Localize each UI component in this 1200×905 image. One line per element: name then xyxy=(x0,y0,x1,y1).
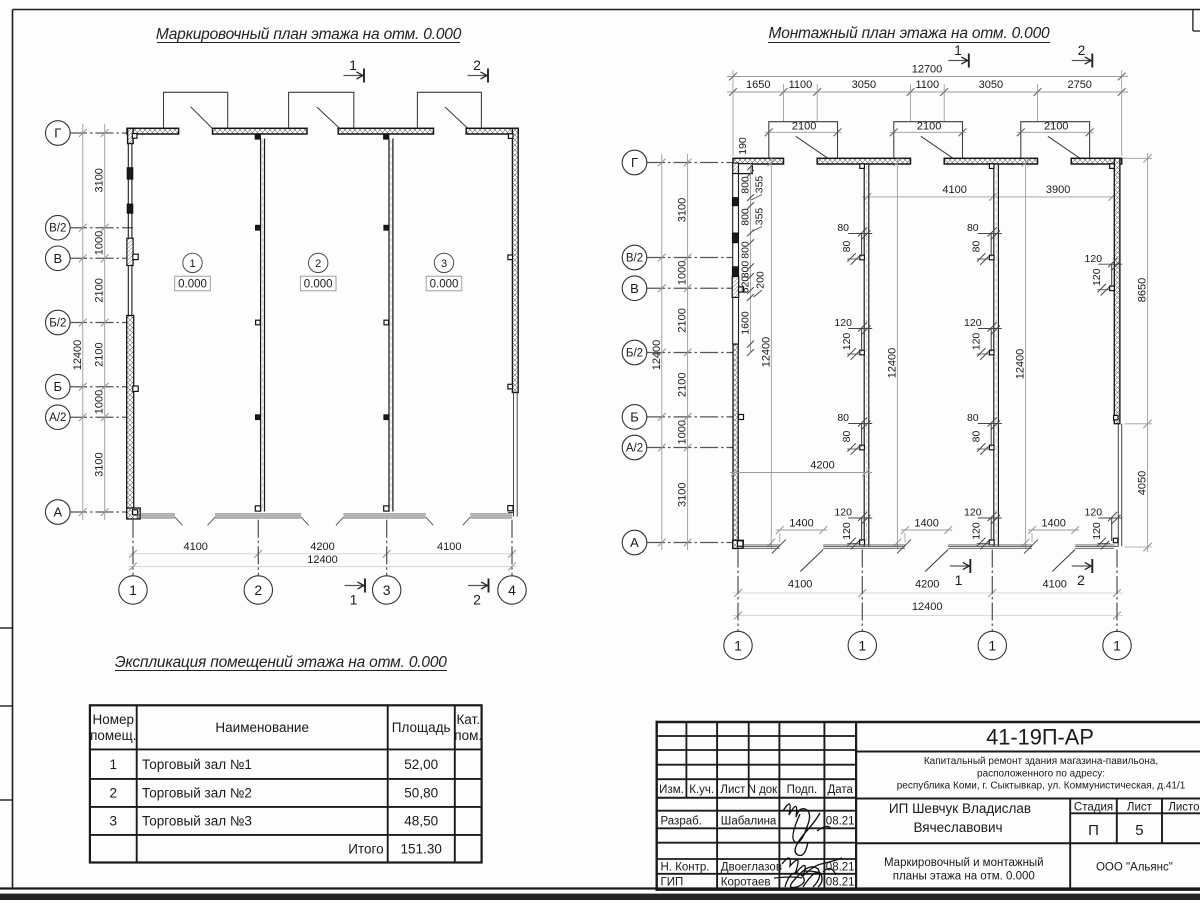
svg-text:800: 800 xyxy=(740,261,752,279)
svg-text:0.000: 0.000 xyxy=(178,279,207,291)
svg-text:3900: 3900 xyxy=(1046,184,1070,196)
svg-text:2: 2 xyxy=(473,57,481,73)
svg-text:Торговый зал №1: Торговый зал №1 xyxy=(142,757,252,772)
svg-text:Б: Б xyxy=(54,379,63,394)
svg-text:1400: 1400 xyxy=(914,517,938,529)
svg-text:1400: 1400 xyxy=(789,517,813,529)
svg-text:3100: 3100 xyxy=(94,452,106,476)
svg-text:В: В xyxy=(630,281,639,296)
svg-text:1: 1 xyxy=(1113,637,1121,653)
svg-text:120: 120 xyxy=(834,317,852,329)
svg-text:12400: 12400 xyxy=(307,554,338,566)
svg-text:12400: 12400 xyxy=(760,337,772,368)
svg-text:2100: 2100 xyxy=(792,120,816,132)
svg-text:пом.: пом. xyxy=(454,728,482,743)
svg-text:Н. Контр.: Н. Контр. xyxy=(661,861,710,873)
svg-text:Б: Б xyxy=(630,409,639,424)
svg-text:2: 2 xyxy=(1078,43,1086,58)
svg-text:80: 80 xyxy=(837,222,849,234)
svg-text:5: 5 xyxy=(1135,822,1143,839)
svg-text:1000: 1000 xyxy=(94,390,106,414)
svg-text:2100: 2100 xyxy=(677,372,689,396)
svg-text:48,50: 48,50 xyxy=(404,814,438,829)
svg-text:ГИП: ГИП xyxy=(661,877,684,889)
svg-text:4: 4 xyxy=(508,582,516,598)
svg-text:А: А xyxy=(630,535,639,550)
svg-text:3: 3 xyxy=(441,258,447,270)
svg-text:120: 120 xyxy=(971,333,983,351)
svg-text:1400: 1400 xyxy=(1041,517,1065,529)
svg-text:Дата: Дата xyxy=(827,784,853,796)
svg-text:расположенного по адресу:: расположенного по адресу: xyxy=(977,768,1105,779)
svg-text:1600: 1600 xyxy=(740,311,752,335)
svg-text:2: 2 xyxy=(473,591,481,607)
svg-text:Лист: Лист xyxy=(1127,802,1153,814)
svg-text:Разраб.: Разраб. xyxy=(661,815,702,827)
svg-text:1: 1 xyxy=(955,572,963,588)
svg-text:Наименование: Наименование xyxy=(215,720,309,735)
svg-text:1: 1 xyxy=(189,258,195,270)
svg-text:41-19П-АР: 41-19П-АР xyxy=(986,725,1094,750)
svg-text:0.000: 0.000 xyxy=(430,279,459,291)
svg-text:151.30: 151.30 xyxy=(401,841,442,856)
svg-text:К.уч.: К.уч. xyxy=(689,784,714,796)
svg-text:80: 80 xyxy=(967,222,979,234)
svg-text:3100: 3100 xyxy=(677,198,689,222)
svg-text:Двоеглазов: Двоеглазов xyxy=(721,861,782,873)
svg-text:12400: 12400 xyxy=(651,340,663,371)
svg-text:120: 120 xyxy=(841,333,853,351)
svg-text:Б/2: Б/2 xyxy=(49,318,66,330)
svg-text:2100: 2100 xyxy=(677,308,689,332)
svg-text:1000: 1000 xyxy=(677,420,689,444)
svg-text:4100: 4100 xyxy=(942,184,966,196)
svg-text:4100: 4100 xyxy=(183,541,207,553)
svg-text:80: 80 xyxy=(837,412,849,424)
svg-text:2: 2 xyxy=(110,786,118,801)
svg-text:12700: 12700 xyxy=(912,64,943,76)
svg-text:1000: 1000 xyxy=(94,231,106,255)
svg-text:4200: 4200 xyxy=(915,579,939,591)
svg-text:1: 1 xyxy=(988,637,996,653)
svg-text:3: 3 xyxy=(383,582,391,598)
svg-text:Кат.: Кат. xyxy=(456,712,480,727)
svg-text:В/2: В/2 xyxy=(626,253,643,265)
svg-text:В: В xyxy=(53,251,62,266)
svg-text:08.21: 08.21 xyxy=(826,861,855,873)
svg-text:1: 1 xyxy=(734,637,742,653)
svg-text:Капитальный ремонт здания мага: Капитальный ремонт здания магазина-павил… xyxy=(924,756,1158,767)
svg-text:Маркировочный план этажа на от: Маркировочный план этажа на отм. 0.000 xyxy=(156,26,462,43)
svg-text:120: 120 xyxy=(971,522,983,540)
svg-text:Подп.: Подп. xyxy=(787,784,818,796)
svg-text:А/2: А/2 xyxy=(49,412,66,424)
svg-text:1100: 1100 xyxy=(789,79,813,91)
svg-text:В/2: В/2 xyxy=(49,223,66,235)
svg-text:120: 120 xyxy=(834,507,852,519)
svg-text:А: А xyxy=(53,505,62,520)
svg-text:0.000: 0.000 xyxy=(304,279,333,291)
svg-text:8650: 8650 xyxy=(1137,278,1149,302)
svg-text:1: 1 xyxy=(349,57,357,73)
svg-text:3050: 3050 xyxy=(852,79,876,91)
svg-text:1000: 1000 xyxy=(677,261,689,285)
svg-text:Площадь: Площадь xyxy=(392,720,451,735)
svg-text:50,80: 50,80 xyxy=(404,786,438,801)
svg-text:П: П xyxy=(1088,822,1099,839)
svg-text:Номер: Номер xyxy=(93,712,135,727)
svg-text:А/2: А/2 xyxy=(626,443,643,455)
svg-text:120: 120 xyxy=(1091,268,1103,286)
svg-text:Коротаев: Коротаев xyxy=(721,877,771,889)
svg-text:2100: 2100 xyxy=(94,342,106,366)
svg-text:3050: 3050 xyxy=(979,79,1003,91)
svg-text:помещ.: помещ. xyxy=(90,728,136,743)
svg-text:3100: 3100 xyxy=(94,168,106,192)
svg-text:2100: 2100 xyxy=(1044,120,1068,132)
svg-text:Листов: Листов xyxy=(1168,802,1200,814)
svg-text:Торговый зал №3: Торговый зал №3 xyxy=(142,814,252,829)
svg-text:2100: 2100 xyxy=(917,120,941,132)
svg-text:ИП Шевчук Владислав: ИП Шевчук Владислав xyxy=(889,801,1031,816)
svg-text:республика Коми, г. Сыктывкар,: республика Коми, г. Сыктывкар, ул. Комму… xyxy=(897,780,1186,792)
svg-text:190: 190 xyxy=(737,137,749,155)
svg-text:80: 80 xyxy=(967,412,979,424)
svg-text:1: 1 xyxy=(110,757,118,772)
svg-text:12400: 12400 xyxy=(1015,349,1027,380)
svg-text:120: 120 xyxy=(1085,253,1103,265)
svg-text:80: 80 xyxy=(841,241,853,253)
svg-text:4100: 4100 xyxy=(788,579,812,591)
svg-text:1: 1 xyxy=(954,43,962,58)
svg-text:3100: 3100 xyxy=(677,482,689,506)
svg-text:2: 2 xyxy=(315,258,321,270)
svg-text:Изм.: Изм. xyxy=(659,784,684,796)
svg-text:ООО "Альянс": ООО "Альянс" xyxy=(1096,862,1173,874)
svg-text:4100: 4100 xyxy=(1042,579,1066,591)
svg-text:200: 200 xyxy=(755,271,767,289)
svg-text:Лист: Лист xyxy=(720,784,746,796)
svg-text:08.21: 08.21 xyxy=(826,815,855,827)
svg-text:52,00: 52,00 xyxy=(404,757,438,772)
svg-text:80: 80 xyxy=(971,431,983,443)
svg-text:Маркировочный и монтажный: Маркировочный и монтажный xyxy=(884,857,1044,869)
svg-text:1: 1 xyxy=(858,637,866,653)
svg-text:Торговый зал №2: Торговый зал №2 xyxy=(142,786,252,801)
svg-text:Шабалина: Шабалина xyxy=(721,815,777,827)
svg-text:80: 80 xyxy=(971,241,983,253)
svg-text:4100: 4100 xyxy=(437,541,461,553)
svg-text:12400: 12400 xyxy=(72,340,84,371)
svg-text:12400: 12400 xyxy=(886,348,898,379)
svg-text:800: 800 xyxy=(740,176,752,194)
svg-text:120: 120 xyxy=(964,507,982,519)
svg-text:1100: 1100 xyxy=(915,79,939,91)
svg-text:80: 80 xyxy=(841,431,853,443)
svg-text:120: 120 xyxy=(841,522,853,540)
svg-text:08.21: 08.21 xyxy=(826,877,855,889)
svg-text:4200: 4200 xyxy=(810,460,834,472)
svg-text:120: 120 xyxy=(1085,507,1103,519)
svg-text:Б/2: Б/2 xyxy=(626,348,643,360)
svg-text:4200: 4200 xyxy=(310,541,334,553)
svg-text:2: 2 xyxy=(254,582,262,598)
svg-text:120: 120 xyxy=(964,317,982,329)
svg-text:2750: 2750 xyxy=(1067,79,1091,91)
svg-text:1: 1 xyxy=(350,591,358,607)
svg-text:2: 2 xyxy=(1077,572,1085,588)
svg-text:Стадия: Стадия xyxy=(1074,802,1113,814)
svg-text:1650: 1650 xyxy=(746,79,770,91)
svg-text:4050: 4050 xyxy=(1137,471,1149,495)
svg-text:2100: 2100 xyxy=(94,278,106,302)
svg-text:Г: Г xyxy=(631,155,638,170)
svg-text:планы этажа на отм. 0.000: планы этажа на отм. 0.000 xyxy=(893,871,1035,883)
svg-text:Г: Г xyxy=(54,126,61,141)
svg-text:1: 1 xyxy=(129,582,137,598)
svg-text:Экспликация помещений этажа на: Экспликация помещений этажа на отм. 0.00… xyxy=(115,654,447,671)
svg-text:355: 355 xyxy=(754,208,766,226)
svg-text:Вячеславович: Вячеславович xyxy=(913,820,1002,835)
svg-text:Монтажный план этажа на отм. 0: Монтажный план этажа на отм. 0.000 xyxy=(769,25,1051,42)
svg-text:800: 800 xyxy=(740,208,752,226)
svg-text:120: 120 xyxy=(1091,522,1103,540)
svg-text:3: 3 xyxy=(110,814,118,829)
svg-text:12400: 12400 xyxy=(912,601,943,613)
svg-text:N док.: N док. xyxy=(748,784,781,796)
svg-text:Итого: Итого xyxy=(348,841,383,856)
svg-text:355: 355 xyxy=(754,176,766,194)
